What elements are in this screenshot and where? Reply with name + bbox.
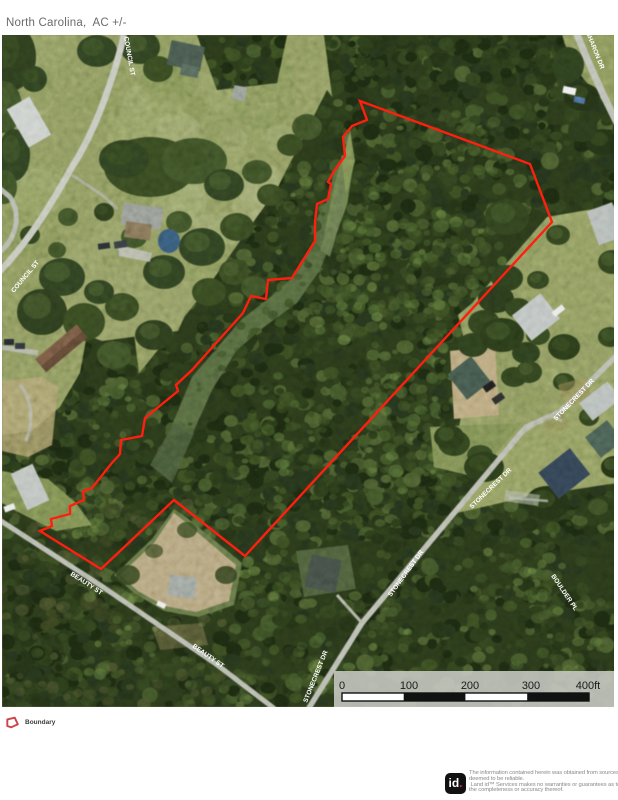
svg-text:100: 100 [400, 680, 418, 692]
svg-text:0: 0 [339, 680, 345, 692]
svg-text:300: 300 [522, 680, 540, 692]
svg-text:200: 200 [461, 680, 479, 692]
svg-text:400ft: 400ft [576, 680, 600, 692]
